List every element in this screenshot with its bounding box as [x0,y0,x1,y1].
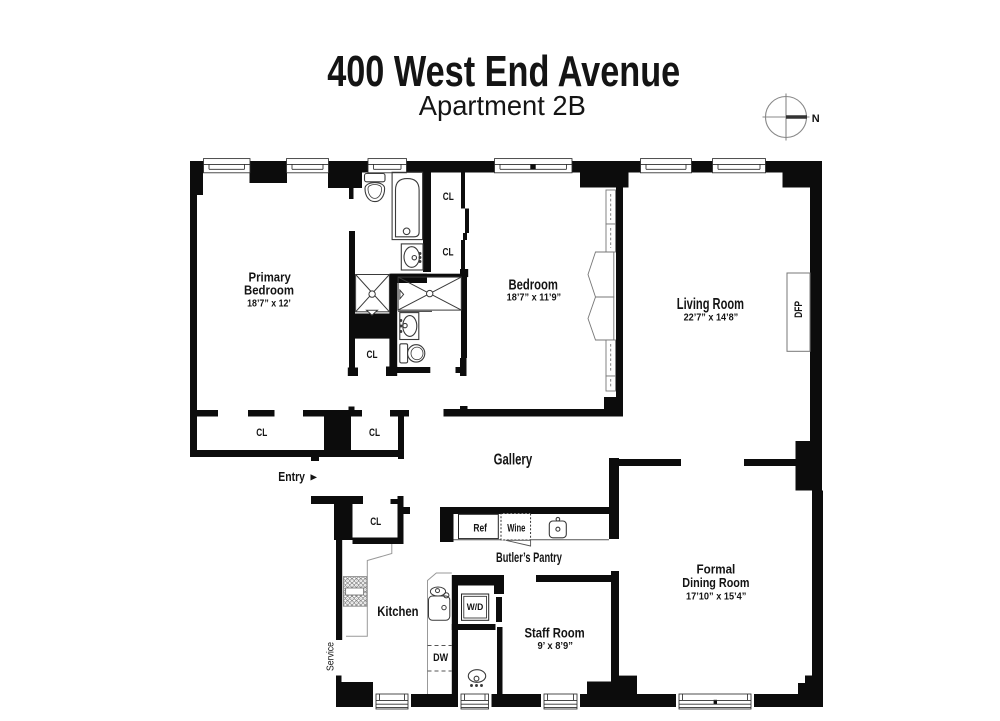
svg-text:DW: DW [433,652,449,664]
svg-text:17’10” x 15’4”: 17’10” x 15’4” [686,592,746,603]
svg-text:CL: CL [369,427,380,439]
svg-text:18’7” x 11’9”: 18’7” x 11’9” [507,292,562,303]
svg-text:Butler’s Pantry: Butler’s Pantry [496,550,562,565]
svg-text:DFP: DFP [793,301,805,318]
svg-text:CL: CL [256,427,267,439]
svg-text:Formal: Formal [697,562,736,576]
svg-text:Apartment 2B: Apartment 2B [419,90,586,121]
svg-text:18’7” x 12’: 18’7” x 12’ [247,298,291,309]
svg-text:CL: CL [443,246,454,258]
svg-text:Gallery: Gallery [494,451,533,468]
svg-text:W/D: W/D [467,602,484,612]
svg-text:Living Room: Living Room [677,296,744,313]
svg-text:CL: CL [370,516,381,528]
svg-text:Bedroom: Bedroom [244,284,294,298]
svg-text:Ref: Ref [473,523,487,535]
svg-text:9’ x 8’9”: 9’ x 8’9” [537,641,573,652]
svg-text:Wine: Wine [507,523,525,535]
svg-text:CL: CL [367,349,378,361]
svg-text:N: N [812,113,820,125]
svg-text:Service: Service [326,642,337,671]
svg-text:Entry: Entry [278,469,305,484]
svg-text:Bedroom: Bedroom [508,278,558,294]
svg-text:Kitchen: Kitchen [377,604,418,619]
svg-text:Primary: Primary [249,271,291,285]
svg-text:22’7” x 14’8”: 22’7” x 14’8” [684,312,739,323]
svg-text:400 West End Avenue: 400 West End Avenue [327,48,680,96]
svg-text:CL: CL [443,191,454,203]
svg-text:Dining Room: Dining Room [682,576,749,590]
svg-text:Staff Room: Staff Room [524,626,584,641]
